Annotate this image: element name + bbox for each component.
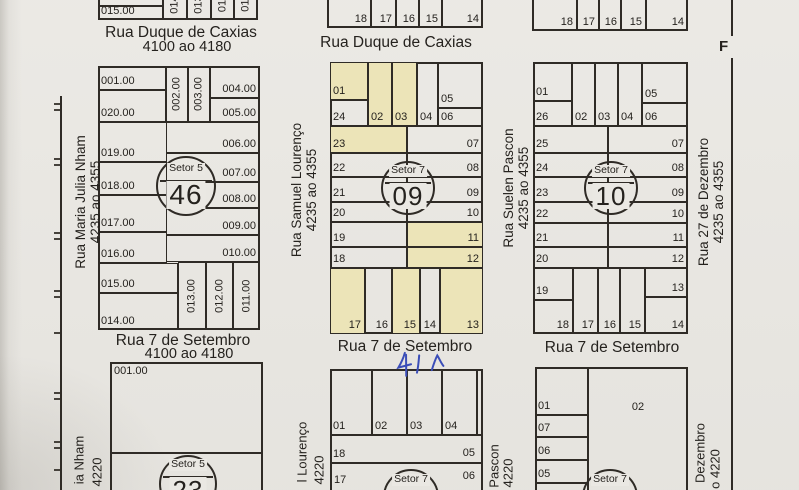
lot-cell: 17 [371,0,396,28]
lot-cell: 17 [577,0,599,31]
lot-number: 13 [467,320,479,331]
tick-mark [54,398,60,400]
lot-number: 03 [410,421,422,432]
street-label-fragment: ia Nham [72,436,87,484]
lot-cell: 19 [533,268,573,300]
lot-number: 001.00 [114,366,148,377]
tick-mark [54,296,60,298]
lot-number: 10 [467,208,479,219]
street-label: Rua 7 de Setembro [545,339,679,357]
street-label-line: 4235 ao 4355 [711,138,726,266]
lot-cell: 14 [646,0,688,31]
sector-label: Setor 7 [592,165,630,177]
sector-label: Setor 7 [389,165,427,177]
lot-cell: 005.00 [210,98,260,122]
lot-number: 04 [621,112,633,123]
lot-cell: 04 [442,369,477,435]
street-label-line: Rua Suelen Pascon [501,128,516,247]
street-label-fragment: 4220 [312,456,327,485]
lot-cell [477,369,483,435]
lot-cell: 15 [419,0,442,28]
lot-cell: 05 [642,62,688,103]
tick-mark [54,441,60,443]
lot-number: 17 [582,320,594,331]
lot-number: 08 [467,163,479,174]
lot-number: 07 [467,139,479,150]
lot-cell: 010.00 [166,235,260,262]
lot-cell: 13 [645,268,688,297]
lot-cell: 07 [407,126,483,153]
lot-number: 17 [380,14,392,25]
lot-number: 18 [333,254,345,265]
sector-label: Setor 5 [167,163,205,175]
lot-number: 06 [463,471,475,482]
tick-mark [54,392,60,394]
lot-number: 09 [672,188,684,199]
street-label-line: Rua 27 de Dezembro [696,138,711,266]
lot-cell: 04 [618,62,642,126]
lot-cell: 01 [535,367,588,415]
lot-cell: 03 [595,62,618,126]
lot-cell: 16 [396,0,419,28]
street-letter-f: F [719,38,728,55]
lot-number: 016.00 [101,249,135,260]
sector-label: Setor 7 [591,474,629,486]
lot-cell: 013.00 [178,262,206,330]
lot-number: 013.00 [187,279,198,313]
lot-cell: 18 [533,300,573,334]
sector-circle: Setor 546 [156,156,216,216]
lot-cell: 016.00 [98,232,167,263]
street-label-line: 4235 ao 4355 [516,128,531,247]
lot-number: 02 [371,112,383,123]
lot-number: 14 [424,320,436,331]
lot-cell: 05 [535,460,588,483]
lot-cell: 01 [533,62,572,101]
tick-mark [54,103,60,105]
lot-number: 01 [333,86,345,97]
lot-cell: 05 [438,62,483,108]
lot-number: 014.00 [101,316,135,327]
lot-cell: 012 [211,0,234,20]
lot-number: 18 [355,14,367,25]
street-label-fragment: 4220 [501,459,516,488]
lot-cell: 05 [452,441,478,461]
lot-cell: 14 [645,297,688,334]
lot-cell: 15 [392,268,420,334]
lot-number: 15 [629,320,641,331]
lot-cell: 12 [407,247,483,268]
lot-number: 005.00 [222,108,256,119]
lot-number: 16 [376,320,388,331]
lot-number: 011.00 [241,280,252,313]
lot-number: 16 [604,320,616,331]
lot-number: 008.00 [222,194,256,205]
quadra-number: 23 [170,477,207,490]
lot-number: 26 [536,112,548,123]
lot-number: 01 [333,421,345,432]
tick-mark [54,158,60,160]
lot-number: 03 [395,112,407,123]
lot-number: 21 [333,188,345,199]
tick-mark [54,447,60,449]
street-label-fragment: Dezembro [693,423,708,483]
lot-number: 018.00 [101,181,135,192]
lot-number: 15 [426,14,438,25]
lot-number: 10 [672,209,684,220]
lot-number: 02 [632,402,644,413]
lot-cell: 01 [330,62,368,100]
lot-cell: 001.00 [98,66,166,90]
lot-cell: 21 [533,223,608,247]
lot-number: 15 [630,17,642,28]
lot-number: 07 [538,423,550,434]
right-border-line-top [731,0,733,36]
lot-cell: 18 [532,0,577,31]
lot-number: 012 [217,0,228,12]
map-layer: 015.00014.013.01201118171615141817161514… [0,0,799,490]
lot-number: 09 [467,188,479,199]
lot-cell: 11 [608,223,688,247]
lot-number: 002.00 [172,77,183,111]
lot-number: 019.00 [101,148,135,159]
lot-number: 08 [672,163,684,174]
street-label-vertical: Rua Maria Julia Nham4235 ao 4355 [73,135,103,269]
lot-number: 02 [575,112,587,123]
lot-number: 19 [536,286,548,297]
lot-number: 19 [333,233,345,244]
lot-number: 11 [468,233,479,244]
sector-label: Setor 5 [169,459,207,471]
lot-cell: 012.00 [206,262,233,330]
lot-cell: 017.00 [98,195,167,232]
sector-circle: Setor 709 [381,161,435,215]
lot-cell: 020.00 [98,90,166,122]
lot-number: 11 [673,233,684,244]
lot-number: 18 [333,449,345,460]
lot-number: 004.00 [222,84,256,95]
lot-number: 007.00 [222,168,256,179]
lot-number: 01 [536,87,548,98]
lot-cell: 02 [572,62,595,126]
lot-number: 17 [334,475,346,486]
tick-mark [54,109,60,111]
lot-number: 24 [333,112,345,123]
lot-number: 003.00 [194,77,205,111]
lot-cell: 18 [327,0,371,28]
lot-cell: 12 [608,247,688,268]
street-label-line: Rua Samuel Lourenço [289,123,304,257]
lot-cell: 26 [533,101,572,126]
lot-cell: 011 [234,0,258,20]
lot-cell: 18 [330,247,407,268]
lot-number: 05 [463,448,475,459]
lot-number: 12 [467,254,479,265]
lot-number: 001.00 [101,76,135,87]
street-label-vertical: Rua Suelen Pascon4235 ao 4355 [501,128,531,247]
lot-cell: 02 [368,62,392,126]
lot-cell: 23 [330,126,407,153]
lot-cell: 002.00 [166,66,188,122]
lot-cell: 001.00 [110,362,263,453]
street-label-line: 4235 ao 4355 [304,123,319,257]
tick-mark [54,290,60,292]
quadra-number: 10 [593,183,630,209]
lot-cell: 07 [608,126,688,153]
lot-number: 16 [403,14,415,25]
street-label-fragment: 4220 [90,458,105,487]
street-label-fragment: l Lourenço [295,422,310,483]
lot-cell: 11 [407,222,483,247]
lot-number: 20 [333,208,345,219]
lot-cell: 004.00 [210,66,260,98]
lot-number: 14 [467,14,479,25]
tick-mark [54,332,60,334]
lot-number: 07 [672,139,684,150]
lot-cell: 15 [620,268,645,334]
lot-number: 21 [536,233,548,244]
lot-number: 01 [538,401,550,412]
quadra-number: 09 [390,183,427,209]
quadra-number: 46 [166,181,205,209]
sector-circle: Setor 710 [584,161,638,215]
lot-number: 16 [605,17,617,28]
street-label: 4100 ao 4180 [143,39,232,55]
lot-number: 23 [536,188,548,199]
lot-cell: 015.00 [98,6,163,20]
lot-cell: 013. [187,0,211,20]
lot-number: 14 [672,17,684,28]
lot-cell: 006.00 [166,122,260,153]
tick-mark [54,469,60,471]
lot-number: 06 [538,446,550,457]
lot-cell: 25 [533,126,608,153]
lot-number: 020.00 [101,108,135,119]
lot-number: 18 [557,320,569,331]
street-label-fragment: o 4220 [708,449,723,489]
lot-cell: 06 [438,108,483,126]
left-border-line [60,96,62,490]
lot-cell: 24 [330,100,368,126]
lot-cell: 15 [621,0,646,31]
lot-cell: 014. [163,0,187,20]
lot-cell: 07 [535,415,588,437]
lot-number: 04 [420,112,432,123]
lot-number: 05 [538,469,550,480]
lot-cell: 16 [598,268,620,334]
lot-number: 15 [404,320,416,331]
lot-cell: 17 [573,268,598,334]
street-label-line: Rua Maria Julia Nham [73,135,88,269]
lot-number: 02 [375,421,387,432]
lot-cell: 011.00 [233,262,260,330]
lot-cell: 06 [642,103,688,126]
lot-cell: 015.00 [98,263,178,293]
lot-cell: 06 [535,437,588,460]
lot-cell: 19 [330,222,407,247]
lot-cell: 16 [599,0,621,31]
lot-cell: 16 [365,268,392,334]
lot-cell: 13 [440,268,483,334]
lot-cell: 01 [330,369,372,435]
lot-number: 06 [645,112,657,123]
lot-number: 23 [333,139,345,150]
lot-number: 010.00 [222,248,256,259]
lot-cell: 003.00 [188,66,210,122]
sector-label: Setor 7 [392,474,430,486]
right-border-line [731,58,733,490]
lot-number: 014. [170,0,181,14]
lot-cell: 03 [392,62,417,126]
lot-number: 011 [241,0,252,12]
street-label: 4100 ao 4180 [145,346,234,362]
lot-cell: 014.00 [98,293,178,330]
lot-number: 13 [672,283,684,294]
lot-cell: 17 [332,472,352,488]
lot-number: 24 [536,163,548,174]
lot-cell: 20 [533,247,608,268]
lot-number: 017.00 [101,218,135,229]
lot-number: 009.00 [222,221,256,232]
lot-number: 17 [349,320,361,331]
lot-number: 04 [445,421,457,432]
lot-cell: 17 [330,268,365,334]
pen-annotation [392,345,455,381]
lot-number: 015.00 [101,279,135,290]
lot-cell: 14 [442,0,483,28]
lot-number: 18 [561,17,573,28]
tick-mark [54,164,60,166]
street-label-line: 4235 ao 4355 [88,135,103,269]
lot-cell: 019.00 [98,122,167,162]
lot-number: 22 [536,209,548,220]
lot-cell: 14 [420,268,440,334]
lot-number: 012.00 [214,279,225,313]
lot-number: 06 [441,112,453,123]
lot-number: 006.00 [222,139,256,150]
tick-mark [54,238,60,240]
lot-number: 05 [441,94,453,105]
lot-number: 22 [333,163,345,174]
street-label: Rua Duque de Caxias [320,34,472,52]
lot-number: 12 [672,254,684,265]
scanned-cadastral-map: 015.00014.013.01201118171615141817161514… [0,0,799,490]
lot-number: 05 [645,89,657,100]
lot-number: 14 [672,320,684,331]
street-label-vertical: Rua Samuel Lourenço4235 ao 4355 [289,123,319,257]
tick-mark [54,232,60,234]
lot-number: 17 [583,17,595,28]
lot-number: 013. [194,0,205,14]
lot-number: 03 [598,112,610,123]
lot-number: 20 [536,254,548,265]
lot-number: 015.00 [101,6,135,17]
lot-cell: 04 [417,62,438,126]
street-label-vertical: Rua 27 de Dezembro4235 ao 4355 [696,138,726,266]
lot-cell: 06 [452,468,478,484]
lot-number: 25 [536,139,548,150]
lot-cell [535,483,588,490]
street-label-fragment: Pascon [487,444,502,487]
